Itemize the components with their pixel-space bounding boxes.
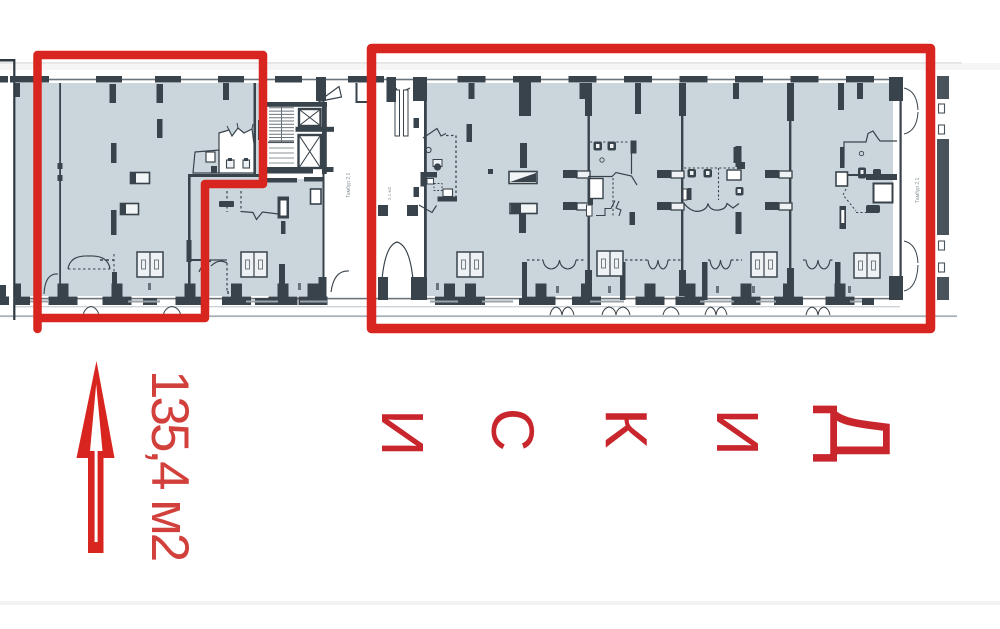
svg-text:135,4 м2: 135,4 м2 [140, 370, 199, 560]
svg-text:К: К [593, 408, 659, 449]
svg-text:С: С [479, 408, 546, 451]
svg-text:Тамбур 2,1: Тамбур 2,1 [915, 177, 921, 203]
svg-text:Тамбур 2,1: Тамбур 2,1 [346, 172, 352, 198]
svg-text:Д: Д [811, 405, 907, 463]
svg-text:И: И [369, 409, 435, 457]
svg-text:И: И [704, 408, 770, 456]
svg-text:2,1 м2: 2,1 м2 [387, 186, 392, 200]
